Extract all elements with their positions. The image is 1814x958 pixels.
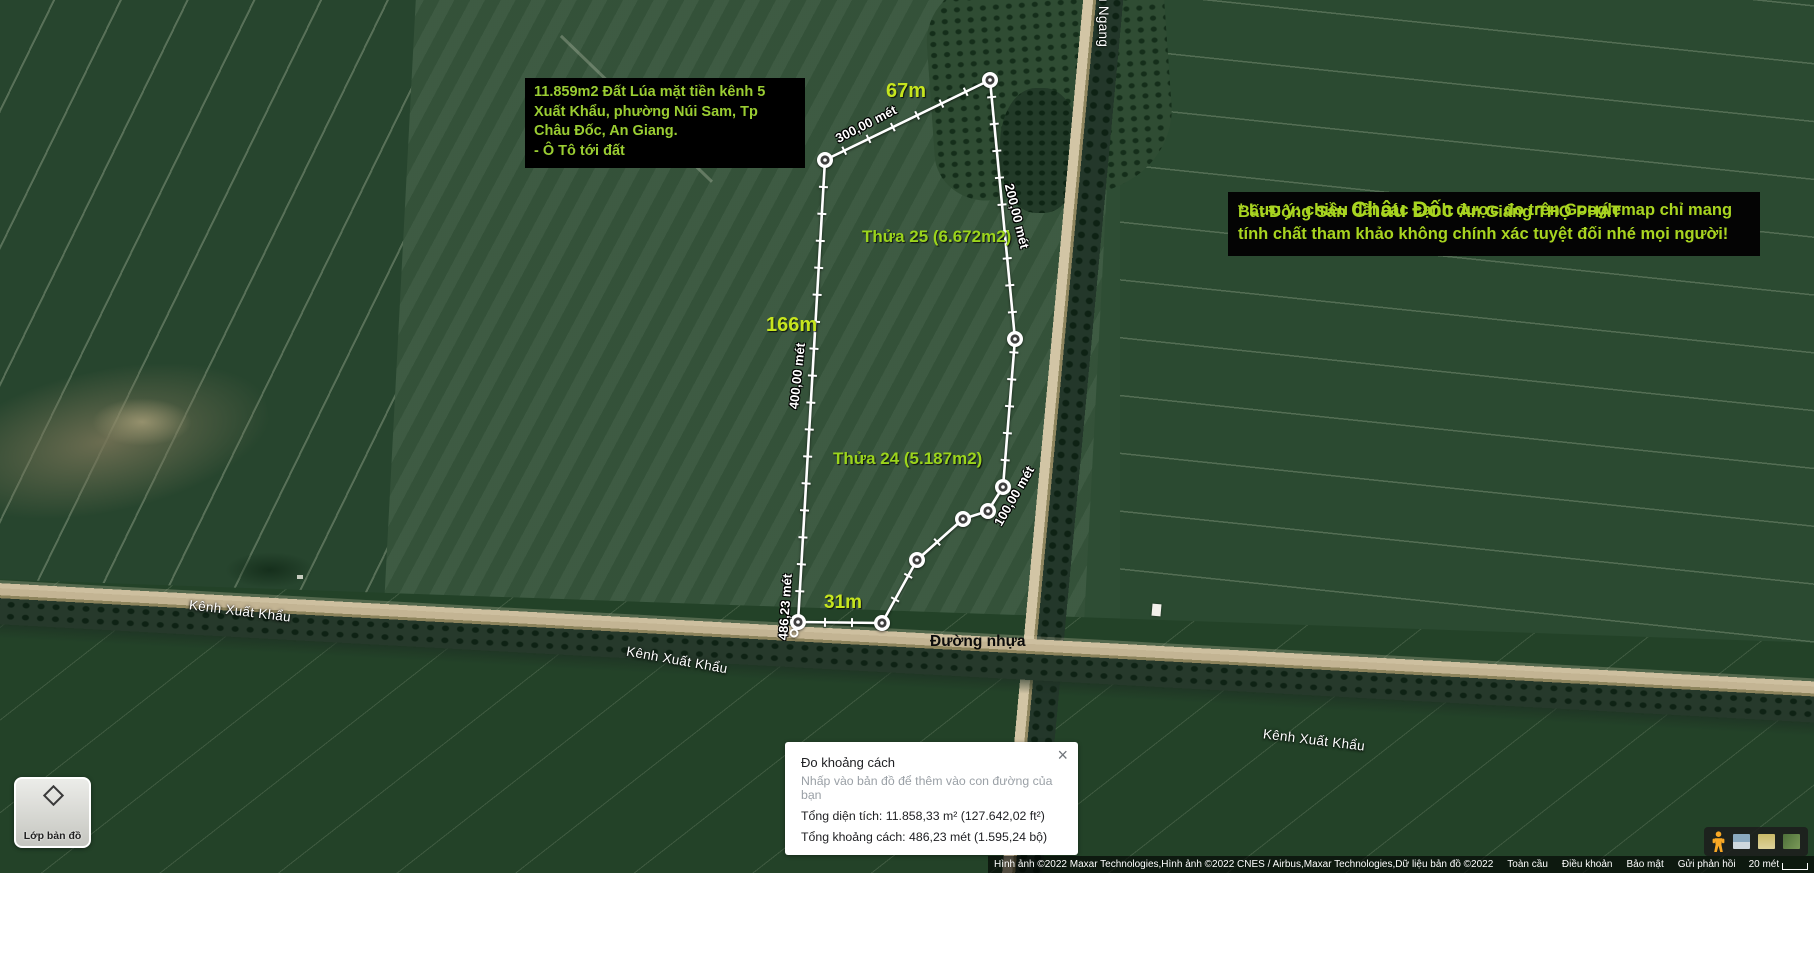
- popup-title: Đo khoảng cách: [801, 755, 1062, 770]
- layers-button-label: Lớp bản đồ: [16, 830, 89, 842]
- close-icon[interactable]: ×: [1057, 746, 1068, 764]
- edge-label-67m: 67m: [886, 80, 926, 103]
- map-layers-button[interactable]: Lớp bản đồ: [14, 777, 91, 848]
- listing-info-box: 11.859m2 Đất Lúa mặt tiền kênh 5 Xuất Kh…: [525, 78, 805, 168]
- agency-title: Bất Động SảnChâu ĐốcAn Giang THỌ PHÁT: [1238, 198, 1621, 224]
- edge-label-31m: 31m: [824, 592, 862, 614]
- popup-hint: Nhấp vào bản đồ để thêm vào con đường củ…: [801, 774, 1062, 802]
- parcel-label-24: Thửa 24 (5.187m2): [833, 449, 982, 469]
- total-distance-value: Tổng khoảng cách: 486,23 mét (1.595,24 b…: [801, 830, 1062, 844]
- attribution-bar: Hình ảnh ©2022 Maxar Technologies,Hình ả…: [988, 856, 1814, 873]
- agency-note-line: tính chất tham khảo không chính xác tuyệ…: [1238, 222, 1750, 246]
- layers-icon: [42, 785, 63, 806]
- agency-note-box: Bất Động SảnChâu ĐốcAn Giang THỌ PHÁT * …: [1228, 192, 1760, 256]
- scale-label: 20 mét: [1749, 859, 1780, 870]
- agency-title-pre: Bất Động Sản: [1238, 203, 1346, 221]
- screenshot-stage: 300,00 mét 200,00 mét 400,00 mét 100,00 …: [0, 0, 1814, 958]
- paved-road-label: Đường nhựa: [930, 633, 1025, 651]
- photos-strip: [1704, 827, 1808, 856]
- edge-label-166m: 166m: [766, 314, 817, 337]
- link-terms[interactable]: Điều khoản: [1562, 859, 1613, 870]
- photo-thumbnail[interactable]: [1758, 834, 1775, 849]
- parcel-label-25: Thửa 25 (6.672m2): [862, 227, 1011, 247]
- total-area-value: Tổng diện tích: 11.858,33 m² (127.642,02…: [801, 809, 1062, 823]
- vertical-canal-label: u Ngang: [1096, 0, 1111, 47]
- agency-title-big: Châu Đốc: [1351, 197, 1454, 222]
- link-privacy[interactable]: Bảo mật: [1626, 859, 1663, 870]
- listing-line: Xuất Khẩu, phường Núi Sam, Tp: [534, 103, 796, 123]
- imagery-credits: Hình ảnh ©2022 Maxar Technologies,Hình ả…: [994, 859, 1493, 870]
- listing-line: 11.859m2 Đất Lúa mặt tiền kênh 5: [534, 83, 796, 103]
- satellite-map[interactable]: 300,00 mét 200,00 mét 400,00 mét 100,00 …: [0, 0, 1814, 873]
- pegman-icon[interactable]: [1712, 831, 1725, 853]
- listing-line: Châu Đốc, An Giang.: [534, 122, 796, 142]
- photo-thumbnail[interactable]: [1733, 834, 1750, 849]
- scale-bar: [1782, 863, 1808, 870]
- listing-line: - Ô Tô tới đất: [534, 142, 796, 162]
- page-bottom-whitespace: [0, 873, 1814, 958]
- agency-title-post: An Giang THỌ PHÁT: [1459, 203, 1621, 221]
- link-global[interactable]: Toàn cầu: [1507, 859, 1548, 870]
- photo-thumbnail[interactable]: [1783, 834, 1800, 849]
- measure-distance-popup: × Đo khoảng cách Nhấp vào bản đồ để thêm…: [785, 742, 1078, 855]
- map-scale: 20 mét: [1749, 859, 1809, 870]
- link-feedback[interactable]: Gửi phản hồi: [1678, 859, 1736, 870]
